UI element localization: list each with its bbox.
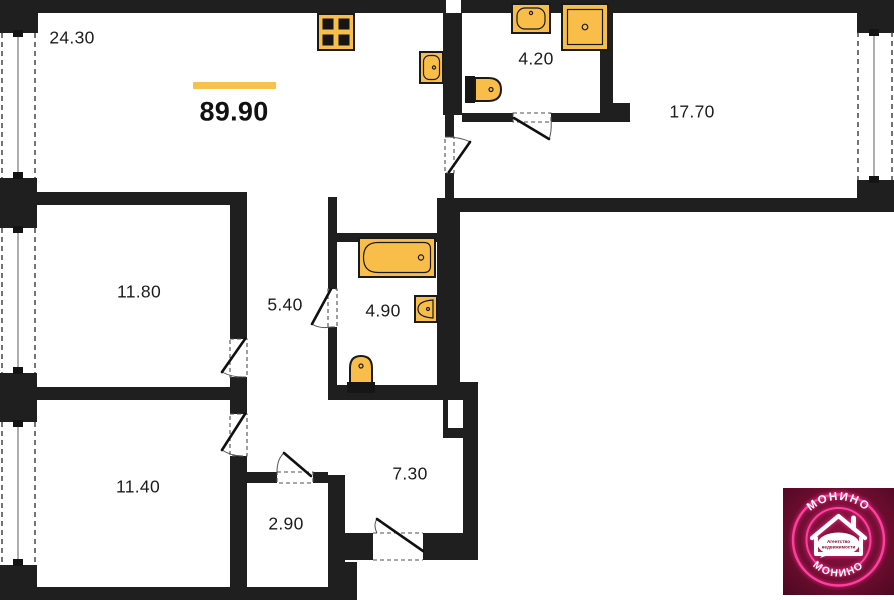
door-bathroom [312, 289, 337, 328]
room-label-entry-hall: 7.30 [392, 464, 427, 485]
logo-tagline-line1: Агентство [827, 539, 850, 544]
total-area-label: 89.90 [199, 97, 268, 128]
door-bedroom-bottom [222, 414, 247, 456]
window-bedroom-bottom [2, 420, 35, 566]
shower-icon [562, 4, 608, 50]
door-kitchen [445, 137, 470, 173]
door-storage [277, 453, 313, 483]
floor-plan-page: 24.30 89.90 4.20 17.70 11.80 5.40 4.90 1… [0, 0, 894, 600]
door-entry [373, 519, 423, 560]
room-label-hallway: 5.40 [267, 295, 302, 316]
logo-brand-top-text: МОНИНО [805, 491, 872, 514]
window-bedroom-middle [2, 226, 35, 374]
door-bedroom-middle [222, 339, 247, 377]
room-label-bedroom-middle: 11.80 [117, 282, 161, 303]
kitchen-sink-icon [420, 52, 443, 83]
washbasin-wc-icon [512, 4, 550, 33]
toilet-bathroom-icon [347, 356, 375, 393]
room-label-kitchen-living: 24.30 [49, 28, 94, 49]
room-label-bathroom: 4.90 [365, 301, 400, 322]
stove-icon [318, 14, 354, 50]
agency-logo: МОНИНО МОНИНО Агентство недвижимости [783, 488, 894, 595]
room-label-room-right: 17.70 [669, 102, 714, 123]
washbasin-bathroom-icon [415, 296, 437, 322]
door-wc [513, 113, 551, 139]
window-room-right [858, 29, 892, 183]
logo-brand-bottom-text: МОНИНО [811, 559, 867, 580]
room-label-wc: 4.20 [518, 49, 553, 70]
room-label-bedroom-bottom: 11.40 [116, 477, 160, 498]
window-kitchen [2, 30, 35, 179]
agency-logo-emblem: МОНИНО МОНИНО Агентство недвижимости [783, 488, 894, 595]
total-area-accent-bar [193, 82, 276, 89]
bathtub-icon [359, 238, 435, 277]
toilet-wc-icon [465, 76, 501, 103]
room-label-storage: 2.90 [268, 514, 303, 535]
logo-tagline-line2: недвижимости [822, 545, 856, 550]
